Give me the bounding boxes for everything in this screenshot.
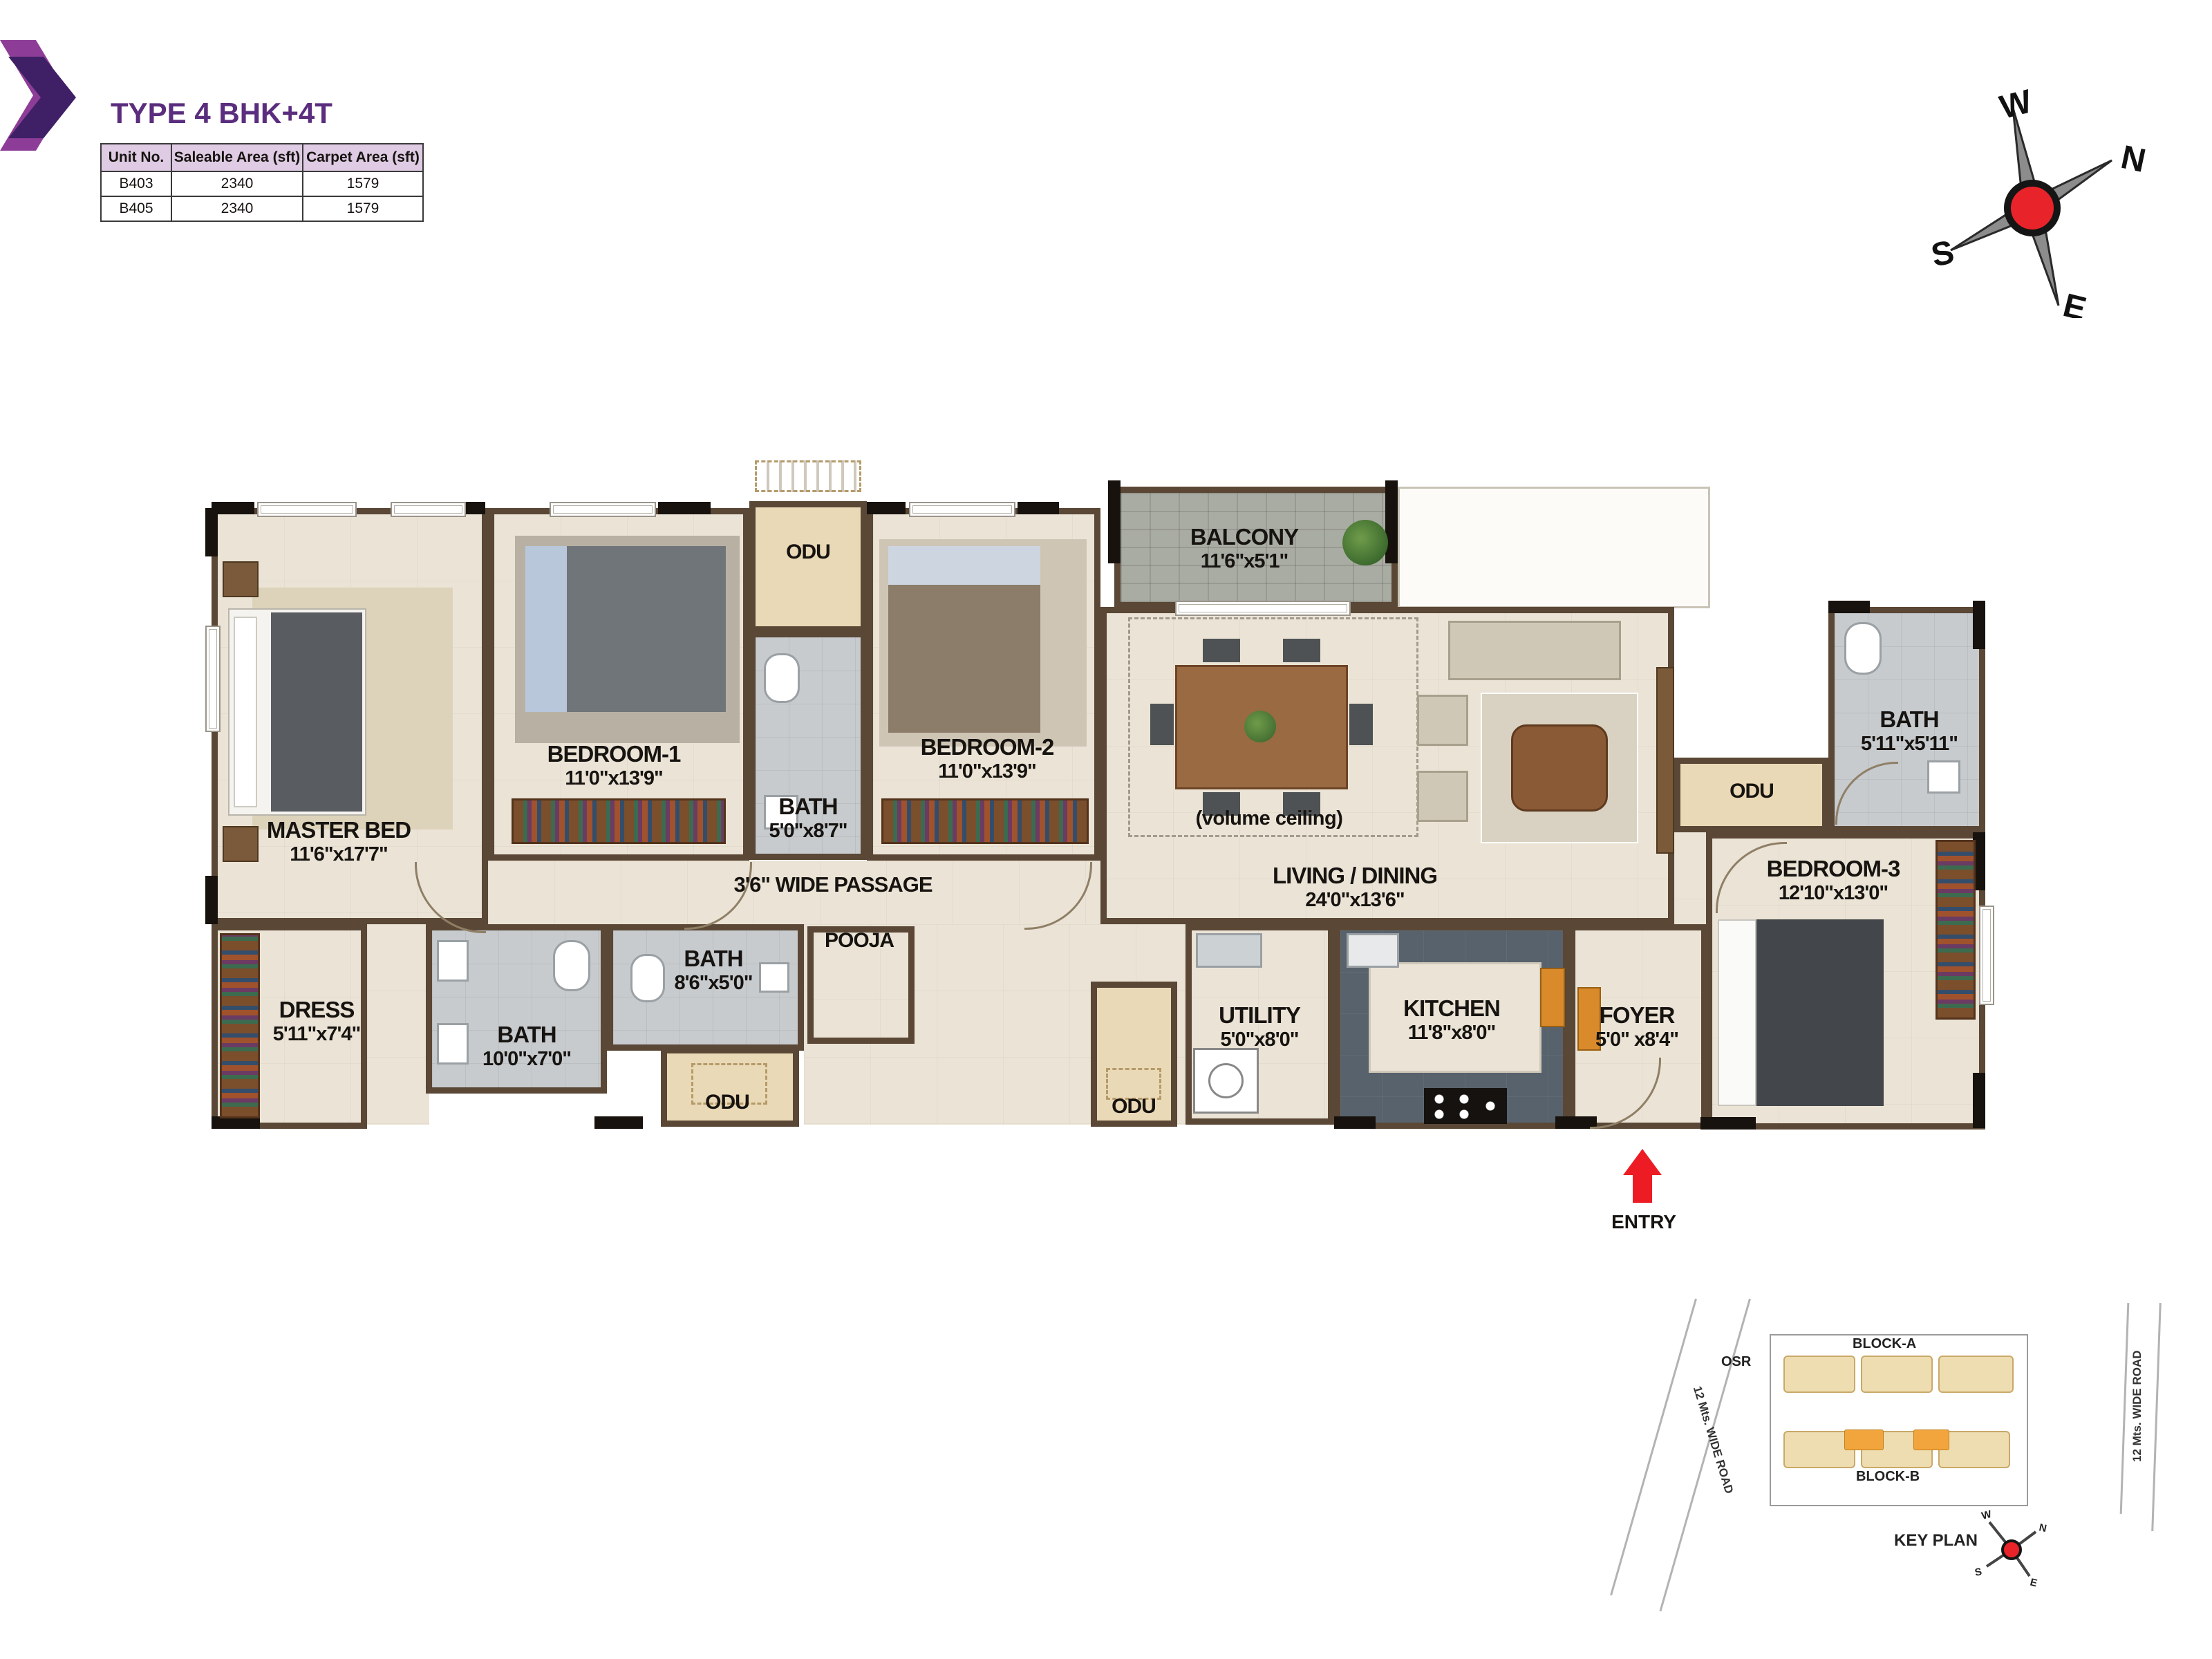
unit-no-cell: B405 [101, 196, 171, 221]
carpet-area-cell: 1579 [303, 196, 423, 221]
building-block [1783, 1356, 1855, 1393]
blanket [1756, 919, 1884, 1106]
window [257, 502, 357, 517]
sink [437, 1023, 469, 1065]
road-label-right: 12 Mts. WIDE ROAD [2130, 1350, 2144, 1462]
wall-segment [205, 876, 218, 924]
road-line [1660, 1299, 1751, 1612]
dining-chair [1283, 639, 1320, 662]
highlighted-unit [1913, 1430, 1949, 1450]
saleable-area-cell: 2340 [171, 171, 303, 196]
wall-segment [867, 502, 906, 514]
carpet-area-cell: 1579 [303, 171, 423, 196]
nightstand [223, 826, 259, 862]
room-label-bath-common: BATH 8'6"x5'0" [675, 946, 753, 995]
building-block [1938, 1356, 2014, 1393]
col-header-carpet-area: Carpet Area (sft) [303, 144, 423, 171]
sink [1927, 760, 1960, 794]
key-plan-compass: W N S E [1970, 1507, 2053, 1586]
coffee-table [1511, 724, 1608, 812]
room-label-odu-top: ODU [786, 541, 830, 565]
room-label-utility: UTILITY 5'0"x8'0" [1219, 1002, 1300, 1052]
wall-segment [212, 502, 254, 514]
compass-east-label: E [2029, 1576, 2038, 1586]
highlighted-unit [1844, 1430, 1884, 1450]
armchair [1417, 695, 1468, 746]
table-row: B405 2340 1579 [101, 196, 423, 221]
dining-chair [1203, 639, 1240, 662]
toilet [630, 954, 665, 1002]
window [909, 502, 1015, 517]
blanket [567, 546, 726, 712]
pillow [234, 617, 257, 807]
table-row: B403 2340 1579 [101, 171, 423, 196]
wall-segment [594, 1116, 643, 1129]
open-terrace [1398, 487, 1710, 608]
entry-label: ENTRY [1611, 1211, 1676, 1233]
armchair [1417, 771, 1468, 822]
tall-cabinet [1540, 968, 1565, 1027]
compass-rose: W N S E [1915, 83, 2150, 318]
compass-south-label: S [1928, 234, 1957, 274]
kitchen-sink [1347, 933, 1399, 968]
room-label-odu-mid: ODU [1112, 1095, 1156, 1119]
wardrobe [512, 798, 726, 844]
room-label-balcony: BALCONY 11'6"x5'1" [1190, 524, 1298, 574]
room-label-bath-3: BATH 5'11"x5'11" [1861, 706, 1958, 756]
stove [1424, 1088, 1507, 1124]
entry-arrow-icon [1623, 1149, 1662, 1175]
road-line [1610, 1299, 1697, 1596]
wall-segment [1108, 480, 1121, 563]
toilet [1844, 622, 1882, 675]
sink [759, 962, 789, 993]
passage-label: 3'6" WIDE PASSAGE [733, 872, 932, 897]
page-title: TYPE 4 BHK+4T [111, 97, 332, 130]
balcony-slider-door [1175, 601, 1351, 616]
room-label-odu-left: ODU [705, 1091, 749, 1115]
wardrobe [1935, 840, 1976, 1020]
wardrobe [220, 933, 260, 1118]
col-header-unit-no: Unit No. [101, 144, 171, 171]
wall-segment [658, 502, 711, 514]
window [391, 502, 466, 517]
toilet [553, 940, 590, 991]
utility-sink [1196, 933, 1262, 968]
wall-segment [1828, 601, 1870, 613]
wardrobe [881, 798, 1089, 844]
building-block [1861, 1356, 1933, 1393]
room-odu-top [749, 501, 867, 632]
block-b-label: BLOCK-B [1856, 1469, 1920, 1485]
road-line [2151, 1303, 2162, 1531]
block-a-label: BLOCK-A [1853, 1336, 1916, 1352]
brand-chevron-dark [8, 57, 76, 138]
col-header-saleable-area: Saleable Area (sft) [171, 144, 303, 171]
wall-segment [1973, 601, 1985, 649]
unit-area-table: Unit No. Saleable Area (sft) Carpet Area… [100, 143, 424, 222]
wall-segment [205, 508, 218, 556]
compass-north-label: N [2118, 139, 2149, 180]
floor-plan-page: TYPE 4 BHK+4T Unit No. Saleable Area (sf… [0, 0, 2212, 1659]
dining-chair [1349, 704, 1373, 745]
compass-west-label: W [1980, 1508, 1994, 1522]
wall-segment [1973, 1073, 1985, 1128]
key-plan: 12 Mts. WIDE ROAD BLOCK-A BLOCK-B OSR 12… [1680, 1303, 2164, 1586]
room-label-bedroom-3: BEDROOM-3 12'10"x13'0" [1767, 856, 1900, 906]
unit-no-cell: B403 [101, 171, 171, 196]
room-label-odu-right: ODU [1730, 780, 1774, 804]
room-label-bedroom-1: BEDROOM-1 11'0"x13'9" [547, 741, 681, 791]
wall-segment [1018, 502, 1059, 514]
table-plant [1244, 711, 1276, 742]
room-label-foyer: FOYER 5'0" x8'4" [1595, 1002, 1678, 1052]
entry-arrow-stem [1633, 1174, 1652, 1203]
osr-label: OSR [1721, 1354, 1751, 1370]
window [1979, 906, 1994, 1005]
blanket [271, 612, 362, 812]
pillow [1718, 919, 1756, 1106]
tv-console [1656, 667, 1674, 854]
window [205, 626, 221, 732]
blanket [888, 585, 1040, 733]
nightstand [223, 561, 259, 597]
room-label-bath-master: BATH 10'0"x7'0" [482, 1022, 571, 1071]
hall-filler [367, 924, 429, 1125]
room-label-pooja: POOJA [825, 929, 894, 953]
wall-segment [1385, 480, 1398, 563]
sofa [1448, 621, 1621, 680]
window [550, 502, 656, 517]
ac-condenser-icon [755, 460, 861, 492]
room-label-master-bed: MASTER BED 11'6"x17'7" [267, 817, 411, 867]
washer-drum [1208, 1063, 1244, 1098]
compass-south-label: S [1974, 1566, 1983, 1579]
compass-east-label: E [2059, 287, 2090, 318]
toilet [764, 653, 800, 703]
road-line [2120, 1303, 2130, 1514]
wall-segment [1700, 1117, 1756, 1130]
volume-ceiling-note: (volume ceiling) [1196, 807, 1343, 831]
room-label-bath-mid: BATH 5'0"x8'7" [769, 794, 847, 843]
saleable-area-cell: 2340 [171, 196, 303, 221]
plant [1342, 520, 1388, 565]
wall-segment [1334, 1116, 1376, 1129]
pillow [525, 546, 567, 712]
pillow [888, 546, 1040, 585]
compass-north-label: N [2038, 1521, 2047, 1535]
room-label-kitchen: KITCHEN 11'8"x8'0" [1403, 995, 1500, 1045]
key-plan-title: KEY PLAN [1894, 1531, 1978, 1550]
compass-west-label: W [1996, 83, 2036, 126]
dining-chair [1150, 704, 1174, 745]
room-label-bedroom-2: BEDROOM-2 11'0"x13'9" [921, 734, 1054, 784]
room-label-dress: DRESS 5'11"x7'4" [273, 997, 360, 1047]
room-label-living-dining: LIVING / DINING 24'0"x13'6" [1273, 863, 1437, 912]
sink [437, 940, 469, 982]
